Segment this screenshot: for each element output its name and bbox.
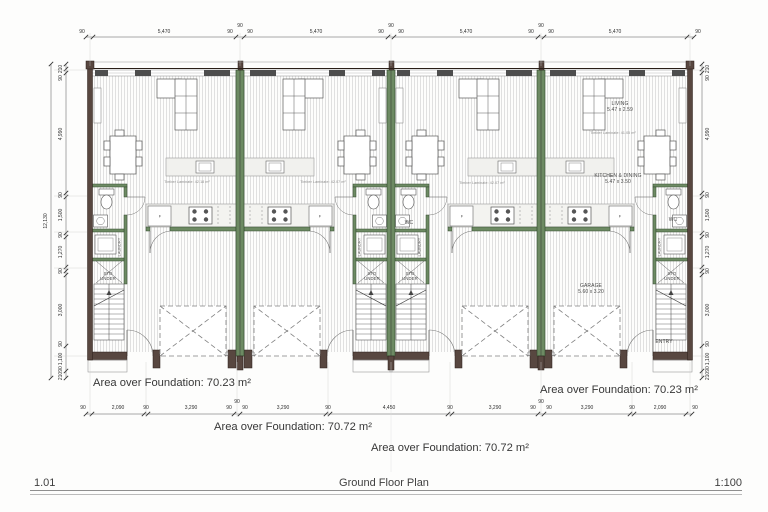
dimension-label: 90 xyxy=(695,29,701,35)
dimension-label: 90 xyxy=(325,405,331,411)
dimension-label: 5,470 xyxy=(158,29,171,35)
dimension-label: 3,290 xyxy=(277,405,290,411)
entry-label: ENTRY xyxy=(655,339,672,345)
dimension-label: 1,100 xyxy=(58,353,64,366)
dimension-label: 90 xyxy=(58,75,64,81)
dimension-label: 90 xyxy=(237,23,243,29)
dimension-label: 5,470 xyxy=(609,29,622,35)
dimension-label: 90 xyxy=(546,405,552,411)
wc-label: WC xyxy=(405,220,414,226)
dimension-label: 3,290 xyxy=(489,405,502,411)
dimension-label: 90 xyxy=(705,341,711,347)
dimension-label: 90 xyxy=(538,23,544,29)
dimension-label: 12,130 xyxy=(43,213,49,228)
dimension-label: 210 xyxy=(705,372,711,380)
storage-under-stairs-label: STO UNDER xyxy=(364,271,379,282)
laundry-label: LAUNDRY xyxy=(658,238,663,257)
dimension-label: 3,000 xyxy=(58,304,64,317)
laundry-label: LAUNDRY xyxy=(118,238,123,257)
floor-finish-note: Timber Laminate: 42.07 m² xyxy=(459,181,505,185)
living-label: LIVING 5.47 x 2.59 xyxy=(607,101,633,114)
sheet-scale: 1:100 xyxy=(714,477,742,489)
dimension-label: 3,290 xyxy=(185,405,198,411)
dimension-label: 3,000 xyxy=(705,304,711,317)
kitchen-dining-label: KITCHEN & DINING 5.47 x 3.50 xyxy=(594,173,641,186)
area-annotation: Area over Foundation: 70.72 m² xyxy=(371,442,529,454)
dimension-label: 90 xyxy=(447,405,453,411)
dimension-label: 90 xyxy=(705,268,711,274)
dimension-label: 1,500 xyxy=(58,209,64,222)
wc-label: WC xyxy=(669,217,678,223)
dimension-label: 90 xyxy=(538,399,544,405)
dimension-label: 90 xyxy=(226,405,232,411)
garage-label: GARAGE 5.60 x 3.20 xyxy=(578,283,604,296)
dimension-label: 4,990 xyxy=(705,128,711,141)
fridge-label: F xyxy=(319,214,322,219)
dimension-label: 90 xyxy=(692,405,698,411)
laundry-label: LAUNDRY xyxy=(418,238,423,257)
dimension-label: 90 xyxy=(80,405,86,411)
dimension-label: 90 xyxy=(247,29,253,35)
dimension-label: 90 xyxy=(398,29,404,35)
annotation-overlay: Area over Foundation: 70.23 m² Area over… xyxy=(0,0,768,512)
laundry-label: LAUNDRY xyxy=(358,238,363,257)
floor-plan-sheet: Area over Foundation: 70.23 m² Area over… xyxy=(0,0,768,512)
dimension-label: 90 xyxy=(58,341,64,347)
dimension-label: 1,500 xyxy=(705,209,711,222)
dimension-label: 90 xyxy=(58,192,64,198)
dimension-label: 5,470 xyxy=(460,29,473,35)
dimension-label: 90 xyxy=(705,192,711,198)
dimension-label: 2,090 xyxy=(112,405,125,411)
dimension-label: 90 xyxy=(234,399,240,405)
dimension-label: 90 xyxy=(528,29,534,35)
title-block-rule xyxy=(30,490,742,491)
dimension-label: 2,090 xyxy=(654,405,667,411)
dimension-label: 90 xyxy=(705,75,711,81)
dimension-label: 3,290 xyxy=(581,405,594,411)
dimension-label: 4,450 xyxy=(383,405,396,411)
area-annotation: Area over Foundation: 70.72 m² xyxy=(214,421,372,433)
fridge-label: F xyxy=(461,214,464,219)
floor-finish-note: Timber Laminate: 42.07 m² xyxy=(300,180,346,184)
dimension-label: 210 xyxy=(705,65,711,73)
fridge-label: F xyxy=(159,214,162,219)
floor-finish-note: Timber Laminate: 42.18 m² xyxy=(164,180,210,184)
dimension-label: 90 xyxy=(548,29,554,35)
dimension-label: 90 xyxy=(143,405,149,411)
fridge-label: F xyxy=(619,214,622,219)
storage-under-stairs-label: STO UNDER xyxy=(664,271,679,282)
storage-under-stairs-label: STO UNDER xyxy=(402,271,417,282)
title-block-rule-2 xyxy=(30,494,742,495)
dimension-label: 1,270 xyxy=(58,246,64,259)
dimension-label: 210 xyxy=(58,65,64,73)
dimension-label: 90 xyxy=(378,29,384,35)
floor-finish-note: Timber Laminate: 41.05 m² xyxy=(590,131,636,135)
dimension-label: 90 xyxy=(79,29,85,35)
dimension-label: 90 xyxy=(242,405,248,411)
dimension-label: 90 xyxy=(629,405,635,411)
storage-under-stairs-label: STO UNDER xyxy=(100,271,115,282)
dimension-label: 90 xyxy=(530,405,536,411)
dimension-label: 90 xyxy=(58,268,64,274)
dimension-label: 90 xyxy=(705,232,711,238)
dimension-label: 90 xyxy=(58,232,64,238)
dimension-label: 4,990 xyxy=(58,128,64,141)
dimension-label: 90 xyxy=(227,29,233,35)
dimension-label: 210 xyxy=(58,372,64,380)
area-annotation: Area over Foundation: 70.23 m² xyxy=(540,384,698,396)
area-annotation: Area over Foundation: 70.23 m² xyxy=(93,377,251,389)
dimension-label: 1,270 xyxy=(705,246,711,259)
dimension-label: 1,100 xyxy=(705,353,711,366)
sheet-title: Ground Floor Plan xyxy=(0,477,768,489)
dimension-label: 90 xyxy=(388,23,394,29)
dimension-label: 5,470 xyxy=(310,29,323,35)
